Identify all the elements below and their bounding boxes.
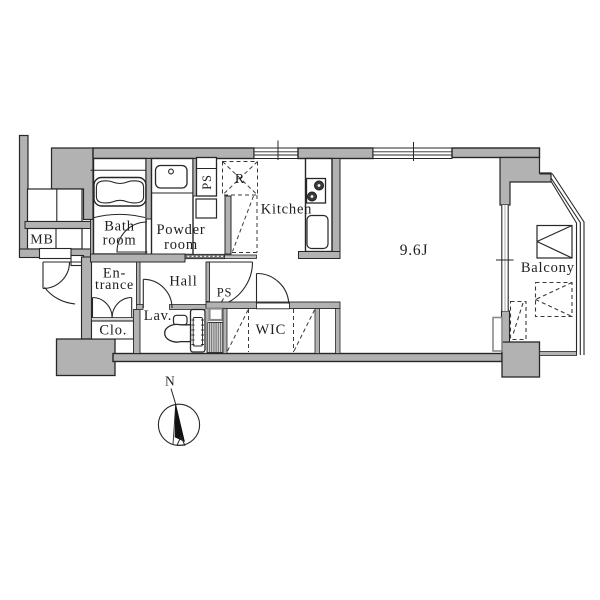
svg-text:PS: PS [217, 285, 233, 299]
svg-text:room: room [164, 237, 198, 253]
svg-text:trance: trance [95, 278, 134, 293]
svg-text:R: R [235, 172, 245, 187]
svg-text:PS: PS [200, 174, 214, 190]
svg-text:Balcony: Balcony [521, 260, 575, 276]
svg-text:Kitchen: Kitchen [261, 202, 313, 218]
svg-text:MB: MB [30, 233, 53, 248]
svg-text:N: N [165, 373, 176, 388]
svg-text:Hall: Hall [169, 274, 197, 290]
svg-text:WIC: WIC [256, 322, 287, 338]
svg-text:Lav.: Lav. [144, 308, 172, 324]
svg-text:Powder: Powder [156, 222, 205, 238]
svg-text:9.6J: 9.6J [400, 242, 429, 259]
svg-text:Clo.: Clo. [99, 323, 127, 339]
